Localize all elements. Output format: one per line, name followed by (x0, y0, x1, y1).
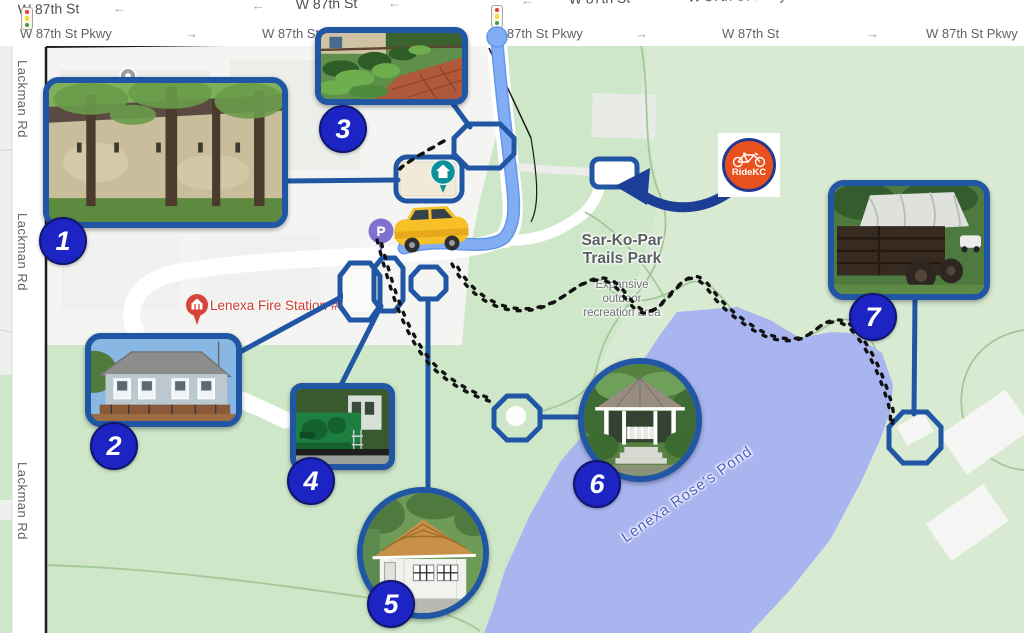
street-label: W 87th St (847, 0, 909, 2)
traffic-light-icon (491, 5, 503, 28)
badge-2: 2 (90, 422, 138, 470)
gazebo-scene (584, 364, 696, 476)
direction-arrow-icon: ← (252, 0, 265, 13)
stone-building-scene (49, 83, 282, 222)
park-subtitle-line2: outdoor (552, 292, 692, 306)
park-name-line1: Sar-Ko-Par (552, 232, 692, 250)
street-strip-parkway: W 87th St Pkwy → W 87th St Pkwy W 87th S… (0, 21, 1024, 46)
bike-icon (732, 152, 766, 168)
road-label-lackman-2: Lackman Rd (15, 213, 30, 291)
park-name-label: Sar-Ko-Par Trails Park (552, 232, 692, 268)
badge-3: 3 (319, 105, 367, 153)
park-name-line2: Trails Park (552, 250, 692, 268)
photo-1-stone-building (43, 77, 288, 228)
street-label: W 87th St Pkwy (688, 0, 787, 5)
road-label-lackman-1: Lackman Rd (15, 60, 30, 138)
direction-arrow-icon: → (185, 26, 198, 41)
photo-7-covered-wagon (828, 180, 990, 300)
ridekc-label: RideKC (732, 168, 766, 178)
direction-arrow-icon: ← (521, 0, 534, 8)
park-subtitle-label: Expansive outdoor recreation area (552, 278, 692, 320)
badge-4: 4 (287, 457, 335, 505)
photo-3-garden (315, 27, 468, 105)
badge-1: 1 (39, 217, 87, 265)
ridekc-circle: RideKC (722, 138, 776, 192)
garden-scene (321, 33, 462, 99)
street-label: W 87th St (722, 26, 779, 41)
parking-pin-letter: P (373, 224, 389, 239)
gray-house-scene (91, 339, 236, 421)
covered-wagon-scene (834, 186, 984, 294)
badge-6: 6 (573, 460, 621, 508)
street-label: W 87th St (569, 0, 631, 7)
fire-station-label: Lenexa Fire Station #2 (210, 298, 346, 313)
annotated-park-map: Lackman Rd Lackman Rd Lackman Rd Sar-Ko-… (0, 0, 1024, 633)
direction-arrow-icon: → (866, 26, 879, 41)
street-strip-top: W 87th St ← ← W 87th St ← ← W 87th St W … (0, 0, 1024, 22)
street-label: W 87th St Pkwy (491, 26, 583, 41)
ridekc-logo: RideKC (718, 133, 780, 197)
photo-2-gray-house (85, 333, 242, 427)
traffic-light-icon (21, 7, 33, 30)
direction-arrow-icon: ← (821, 0, 834, 2)
park-subtitle-line1: Expansive (552, 278, 692, 292)
street-label: W 87th St Pkwy (926, 26, 1018, 41)
street-label: W 87th St (296, 0, 358, 12)
direction-arrow-icon: ← (113, 0, 126, 15)
road-label-lackman-3: Lackman Rd (15, 462, 30, 540)
badge-7: 7 (849, 293, 897, 341)
direction-arrow-icon: ← (388, 0, 401, 10)
direction-arrow-icon: → (635, 26, 648, 41)
caboose-scene (296, 389, 389, 464)
park-subtitle-line3: recreation area (552, 306, 692, 320)
street-label: W 87th St Pkwy (20, 26, 112, 41)
badge-5: 5 (367, 580, 415, 628)
